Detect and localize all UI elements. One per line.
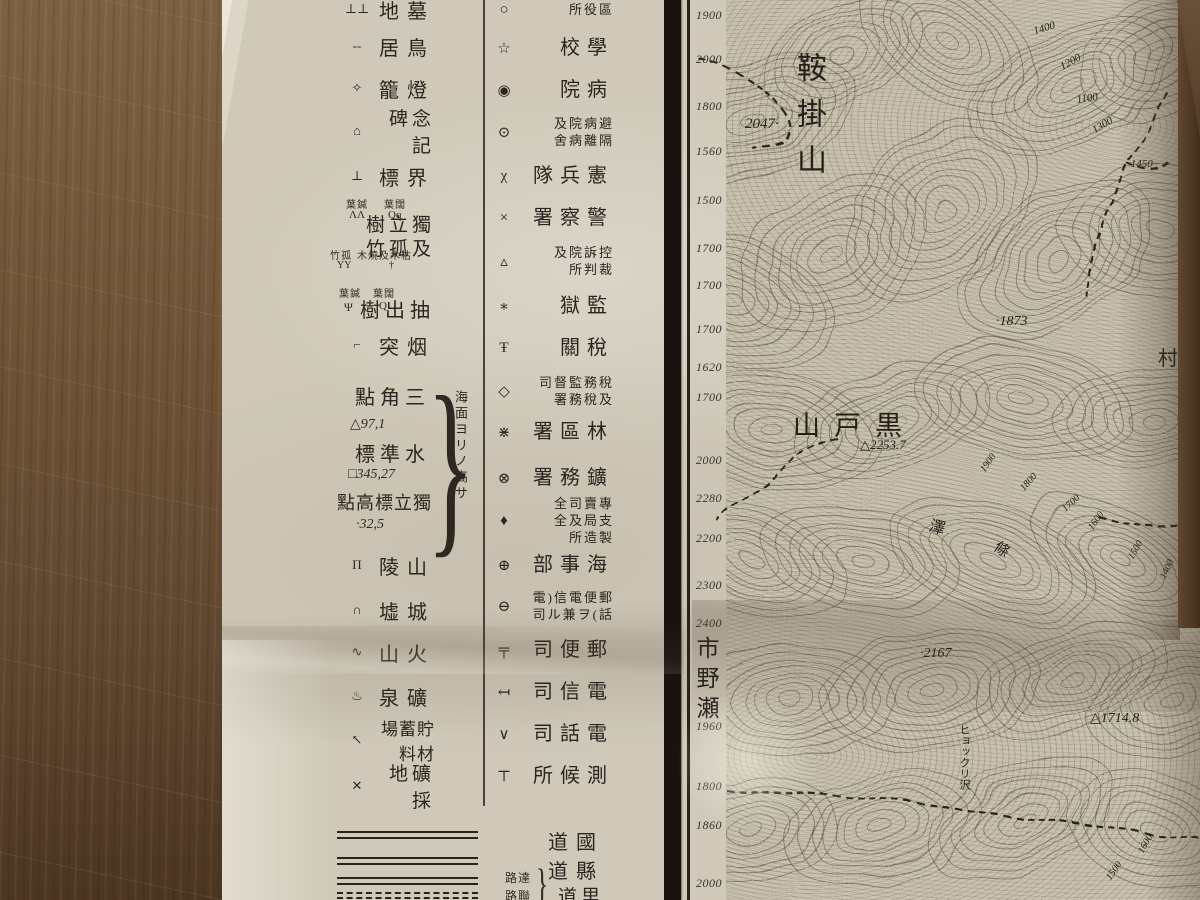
legend-label-line: 全司賣專 <box>516 496 614 513</box>
paper-edge-highlight <box>222 640 332 900</box>
legend-label: 司信電 <box>516 682 614 702</box>
monument-icon: ⌂ <box>340 123 374 139</box>
legend-label-line: 校學 <box>516 38 614 58</box>
lone-bamboo-icon: ΥΥ <box>337 260 351 271</box>
legend-row: ✕地礦採 <box>340 773 435 799</box>
legend-label: 泉礦 <box>374 682 435 711</box>
castle-ruins-icon: ∩ <box>340 602 374 618</box>
extraction-tree-label: 樹出抽 <box>340 294 435 323</box>
legend-label-line: 部事海 <box>516 555 614 575</box>
legend-label: 所役區 <box>516 2 614 19</box>
village-road-dashed-line <box>337 892 478 894</box>
legend-label: 場蓄貯料材 <box>374 715 435 765</box>
telephone-office-icon: ∨ <box>492 725 516 744</box>
legend-row: ◇司督監務稅署務稅及 <box>492 375 614 409</box>
legend-row: Ŧ關稅 <box>492 338 614 358</box>
village-road-line2 <box>337 883 478 885</box>
legend-row: ⊖電)信電便郵司ル兼ヲ(話 <box>492 590 614 624</box>
legend-label: 及院訴控所判裁 <box>516 245 614 279</box>
legend-label: 突烟 <box>374 331 435 360</box>
legend-label-line: 署務稅及 <box>516 392 614 409</box>
monopoly-bureau-icon: ♦ <box>492 513 516 530</box>
weather-station-icon: ⊤ <box>492 767 516 786</box>
legend-label: 署察警 <box>516 208 614 228</box>
national-road-line2 <box>337 837 478 839</box>
right-fold-shadow <box>1118 0 1180 640</box>
dead-burnt-tree-icon: † <box>389 260 394 271</box>
legend-row: ×署察警 <box>492 208 614 228</box>
margin-elevation: 2300 <box>696 578 730 593</box>
chimney-icon: ⌐ <box>340 337 374 353</box>
legend-label: 司話電 <box>516 724 614 744</box>
spot-height-example: ·32,5 <box>356 517 384 533</box>
legend-label-line: 司督監務稅 <box>516 375 614 392</box>
legend-row: ⋇署區林 <box>492 422 614 442</box>
margin-elevation: 1560 <box>696 144 730 159</box>
village-road-dashed-line2 <box>337 897 478 899</box>
stone-lantern-icon: ✧ <box>340 80 374 96</box>
legend-row: ☆校學 <box>492 38 614 58</box>
legend-row: ⌂碑念記 <box>340 118 435 144</box>
forestry-office-icon: ⋇ <box>492 423 516 442</box>
village-road-line <box>337 877 478 879</box>
legend-label-line: 及院訴控 <box>516 245 614 262</box>
margin-elevation: 1700 <box>696 241 730 256</box>
legend-label-line: 所役區 <box>516 2 614 19</box>
legend-row: ↤司信電 <box>492 682 614 702</box>
legend-label: 獄監 <box>516 296 614 316</box>
margin-elevation: 2280 <box>696 491 730 506</box>
triangulation-2253-7: △2253.7 <box>860 437 906 453</box>
legend-row: ∗獄監 <box>492 296 614 316</box>
prison-icon: ∗ <box>492 297 516 316</box>
margin-elevation: 1620 <box>696 360 730 375</box>
legend-row: ∨司話電 <box>492 724 614 744</box>
mining-office-icon: ⊗ <box>492 469 516 488</box>
legend-label-line: 獄監 <box>516 296 614 316</box>
peak-kurakakeyama: 鞍掛山 <box>786 52 830 190</box>
spot-height-label: 點高標立獨 <box>328 489 432 515</box>
torii-icon: -- <box>340 38 374 54</box>
ward-office-icon: ○ <box>492 2 516 19</box>
legend-label-line: 署區林 <box>516 422 614 442</box>
legend-label-line: 舍病離隔 <box>516 133 614 150</box>
legend-label: 地礦採 <box>374 759 435 813</box>
legend-row: ⊗署務鑛 <box>492 468 614 488</box>
margin-elevation: 2000 <box>696 876 730 891</box>
legend-label-line: 司信電 <box>516 682 614 702</box>
benchmark-label: 標準水 <box>330 438 430 467</box>
legend-label-line: 全及局支 <box>516 513 614 530</box>
legend-row: ⊤所候測 <box>492 766 614 786</box>
dead-burnt-tree-label: 木燒及木枯 <box>357 247 412 262</box>
isolation-hospital-icon: ⊙ <box>492 123 516 142</box>
through-road-label: 路達 <box>505 869 531 886</box>
legend-row: χ隊兵憲 <box>492 166 614 186</box>
legend-label: 關稅 <box>516 338 614 358</box>
legend-column-divider <box>483 0 485 806</box>
legend-label-line: 電)信電便郵 <box>516 590 614 607</box>
legend-label: 標界 <box>374 162 435 191</box>
tax-office-icon: ◇ <box>492 382 516 401</box>
triangulation-1714-8: △1714.8 <box>1090 710 1139 727</box>
spot-height-2047: 2047· <box>745 116 779 133</box>
height-above-sea-note: 海面ヨリノ高サ <box>451 390 470 502</box>
hyokkuri-sawa: ヒョックリ沢 <box>956 724 972 790</box>
legend-label-line: 所判裁 <box>516 262 614 279</box>
legend-label: 地墓 <box>374 0 435 24</box>
isolated-tree-label-line1: 樹立獨 <box>340 210 435 237</box>
margin-elevation: 1500 <box>696 193 730 208</box>
legend-label-line: 及院病避 <box>516 116 614 133</box>
post-telegraph-telephone-icon: ⊖ <box>492 597 516 616</box>
cemetery-icon: ⊥⊥ <box>340 1 374 17</box>
legend-label: 居鳥 <box>374 32 435 61</box>
military-police-icon: χ <box>492 168 516 185</box>
legend-label-line: 關稅 <box>516 338 614 358</box>
legend-label: 電)信電便郵司ル兼ヲ(話 <box>516 590 614 624</box>
boundary-marker-icon: ⊥ <box>340 168 374 184</box>
mining-site-icon: ✕ <box>340 778 374 794</box>
legend-label-line: 院病 <box>516 80 614 100</box>
hospital-icon: ◉ <box>492 81 516 100</box>
margin-elevation: 2000 <box>696 453 730 468</box>
legend-label-line: 司ル兼ヲ(話 <box>516 607 614 624</box>
benchmark-example: □345,27 <box>348 467 395 483</box>
margin-elevation: 1900 <box>696 8 730 23</box>
legend-label: 校學 <box>516 38 614 58</box>
legend-row: ✧籠燈 <box>340 75 435 101</box>
paper-fold-highlight <box>676 692 816 832</box>
legend-label: 隊兵憲 <box>516 166 614 186</box>
legend-row: ⊙及院病避舍病離隔 <box>492 116 614 150</box>
legend-label-line: 隊兵憲 <box>516 166 614 186</box>
legend-row: ⌐突烟 <box>340 332 435 358</box>
legend-row: ♦全司賣專全及局支所造製 <box>492 496 614 547</box>
connecting-road-label: 路聯 <box>505 887 531 900</box>
lumber-depot-icon: ↖ <box>340 732 374 748</box>
margin-elevation: 2000 <box>696 52 730 67</box>
legend-row: Π陵山 <box>340 552 435 578</box>
legend-label: 署區林 <box>516 422 614 442</box>
right-fold-shadow-lower <box>1146 620 1200 900</box>
legend-row: ⊥標界 <box>340 163 435 189</box>
national-road-line <box>337 831 478 833</box>
village-road-label: 道里 <box>540 882 604 900</box>
legend-row: ∩墟城 <box>340 597 435 623</box>
legend-label-line: 署務鑛 <box>516 468 614 488</box>
customs-icon: Ŧ <box>492 340 516 357</box>
triangulation-point-example: △97,1 <box>350 416 385 433</box>
legend-label: 所候測 <box>516 766 614 786</box>
prefectural-road-line2 <box>337 863 478 865</box>
legend-label: 院病 <box>516 80 614 100</box>
triangulation-point-label: 點角三 <box>330 381 430 410</box>
legend-label-line: 所候測 <box>516 766 614 786</box>
photo-old-japanese-topo-map: ⊥⊥地墓--居鳥✧籠燈⌂碑念記⊥標界⌐突烟Π陵山∩墟城∿山火♨泉礦↖場蓄貯料材✕… <box>0 0 1200 900</box>
legend-row: ⊥⊥地墓 <box>340 0 435 22</box>
legend-label: 籠燈 <box>374 74 435 103</box>
legend-label: 全司賣專全及局支所造製 <box>516 496 614 547</box>
legend-row: --居鳥 <box>340 33 435 59</box>
legend-label: 部事海 <box>516 555 614 575</box>
court-icon: ▵ <box>492 252 516 271</box>
margin-elevation: 2200 <box>696 531 730 546</box>
legend-label: 及院病避舍病離隔 <box>516 116 614 150</box>
police-station-icon: × <box>492 210 516 227</box>
legend-label-line: 司話電 <box>516 724 614 744</box>
legend-label: 司督監務稅署務稅及 <box>516 375 614 409</box>
telegraph-office-icon: ↤ <box>492 683 516 702</box>
margin-elevation: 1700 <box>696 390 730 405</box>
legend-label: 墟城 <box>374 596 435 625</box>
legend-label: 陵山 <box>374 551 435 580</box>
legend-label: 碑念記 <box>374 104 435 158</box>
margin-elevation: 1800 <box>696 99 730 114</box>
legend-label: 署務鑛 <box>516 468 614 488</box>
map-legend: ⊥⊥地墓--居鳥✧籠燈⌂碑念記⊥標界⌐突烟Π陵山∩墟城∿山火♨泉礦↖場蓄貯料材✕… <box>0 0 692 900</box>
legend-label-line: 署察警 <box>516 208 614 228</box>
legend-row: ⊕部事海 <box>492 555 614 575</box>
legend-row: ↖場蓄貯料材 <box>340 727 435 753</box>
legend-row: ♨泉礦 <box>340 683 435 709</box>
national-road-label: 道國 <box>520 826 604 855</box>
mountain-ridge-icon: Π <box>340 557 374 573</box>
legend-row: ◉院病 <box>492 80 614 100</box>
spot-height-1873: ·1873 <box>996 314 1028 330</box>
legend-label-line: 所造製 <box>516 530 614 547</box>
prefectural-road-line <box>337 857 478 859</box>
school-icon: ☆ <box>492 39 516 58</box>
legend-row: ○所役區 <box>492 2 614 19</box>
maritime-office-icon: ⊕ <box>492 556 516 575</box>
margin-elevation: 1700 <box>696 322 730 337</box>
mineral-spring-icon: ♨ <box>340 688 374 704</box>
legend-row: ▵及院訴控所判裁 <box>492 245 614 279</box>
margin-elevation: 1700 <box>696 278 730 293</box>
prefectural-road-label: 道縣 <box>520 855 604 884</box>
